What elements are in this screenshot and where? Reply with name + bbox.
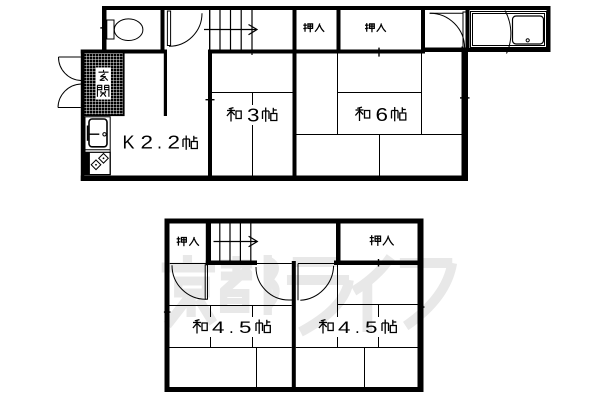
svg-text:2: 2 (141, 133, 154, 153)
svg-text:4: 4 (338, 318, 351, 337)
svg-text:2: 2 (168, 133, 181, 153)
svg-text:.: . (157, 133, 162, 153)
svg-text:K: K (123, 133, 135, 153)
svg-text:.: . (229, 318, 234, 337)
svg-text:.: . (355, 318, 360, 337)
svg-text:5: 5 (239, 318, 252, 337)
svg-text:6: 6 (376, 105, 389, 125)
svg-text:3: 3 (247, 106, 260, 126)
